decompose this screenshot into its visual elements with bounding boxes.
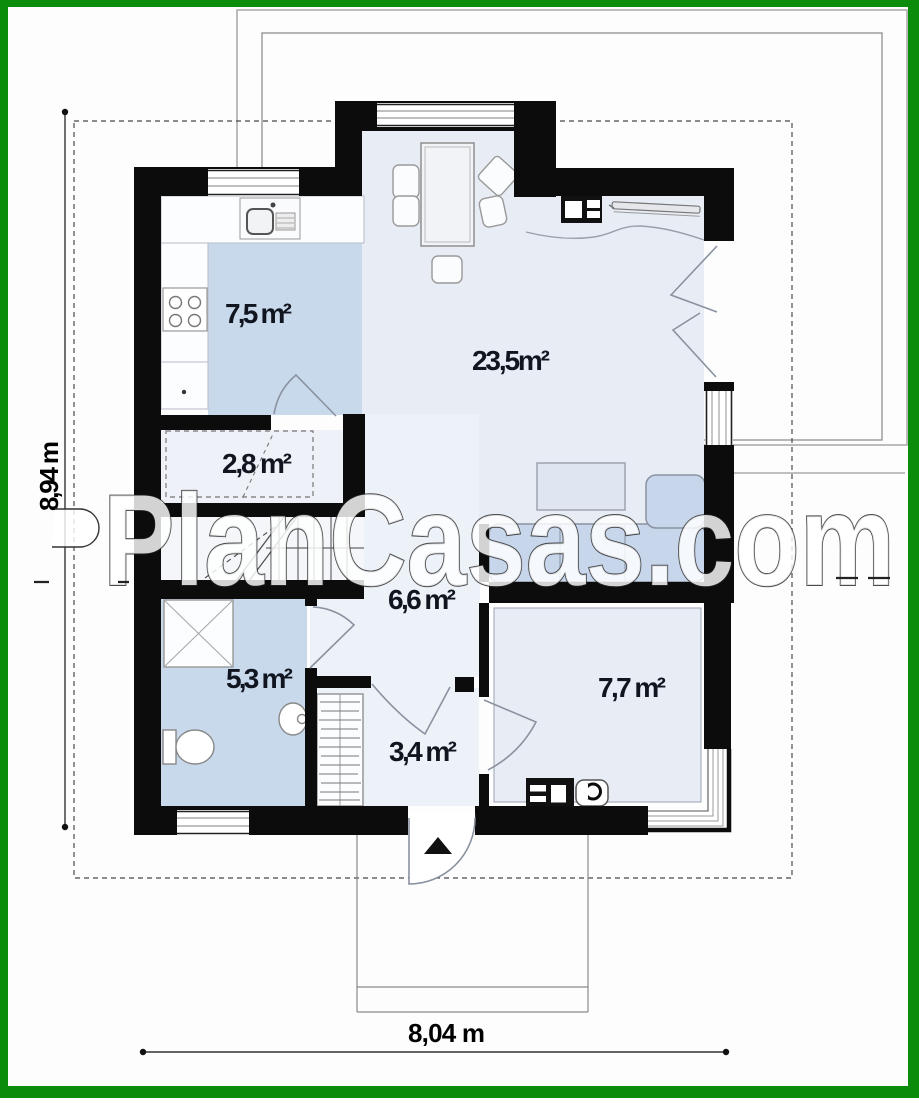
- svg-text:5,3 m²: 5,3 m²: [226, 663, 293, 694]
- svg-text:PlanCasas.com: PlanCasas.com: [103, 467, 895, 613]
- svg-text:8,04 m: 8,04 m: [408, 1018, 485, 1048]
- svg-text:3,4 m²: 3,4 m²: [389, 736, 457, 767]
- svg-text:7,5 m²: 7,5 m²: [225, 298, 292, 329]
- svg-text:23,5m²: 23,5m²: [472, 345, 550, 376]
- svg-text:7,7 m²: 7,7 m²: [598, 672, 666, 703]
- svg-text:8,94 m: 8,94 m: [34, 441, 64, 511]
